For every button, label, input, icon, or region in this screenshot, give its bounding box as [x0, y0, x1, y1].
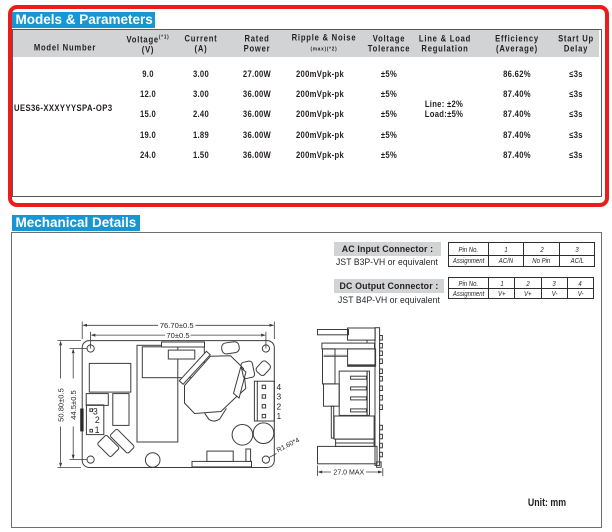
- svg-text:R1.60*4: R1.60*4: [276, 437, 301, 454]
- svg-text:70±0.5: 70±0.5: [166, 331, 189, 340]
- svg-text:76.70±0.5: 76.70±0.5: [160, 321, 194, 330]
- svg-text:1: 1: [95, 425, 100, 435]
- svg-text:2: 2: [276, 401, 281, 411]
- svg-text:44.5±0.5: 44.5±0.5: [69, 390, 78, 420]
- svg-text:2: 2: [95, 415, 100, 425]
- svg-text:1: 1: [276, 411, 281, 421]
- svg-text:50.80±0.5: 50.80±0.5: [56, 388, 65, 422]
- svg-text:27.0 MAX: 27.0 MAX: [333, 470, 364, 477]
- svg-text:4: 4: [276, 382, 281, 392]
- svg-text:3: 3: [276, 392, 281, 402]
